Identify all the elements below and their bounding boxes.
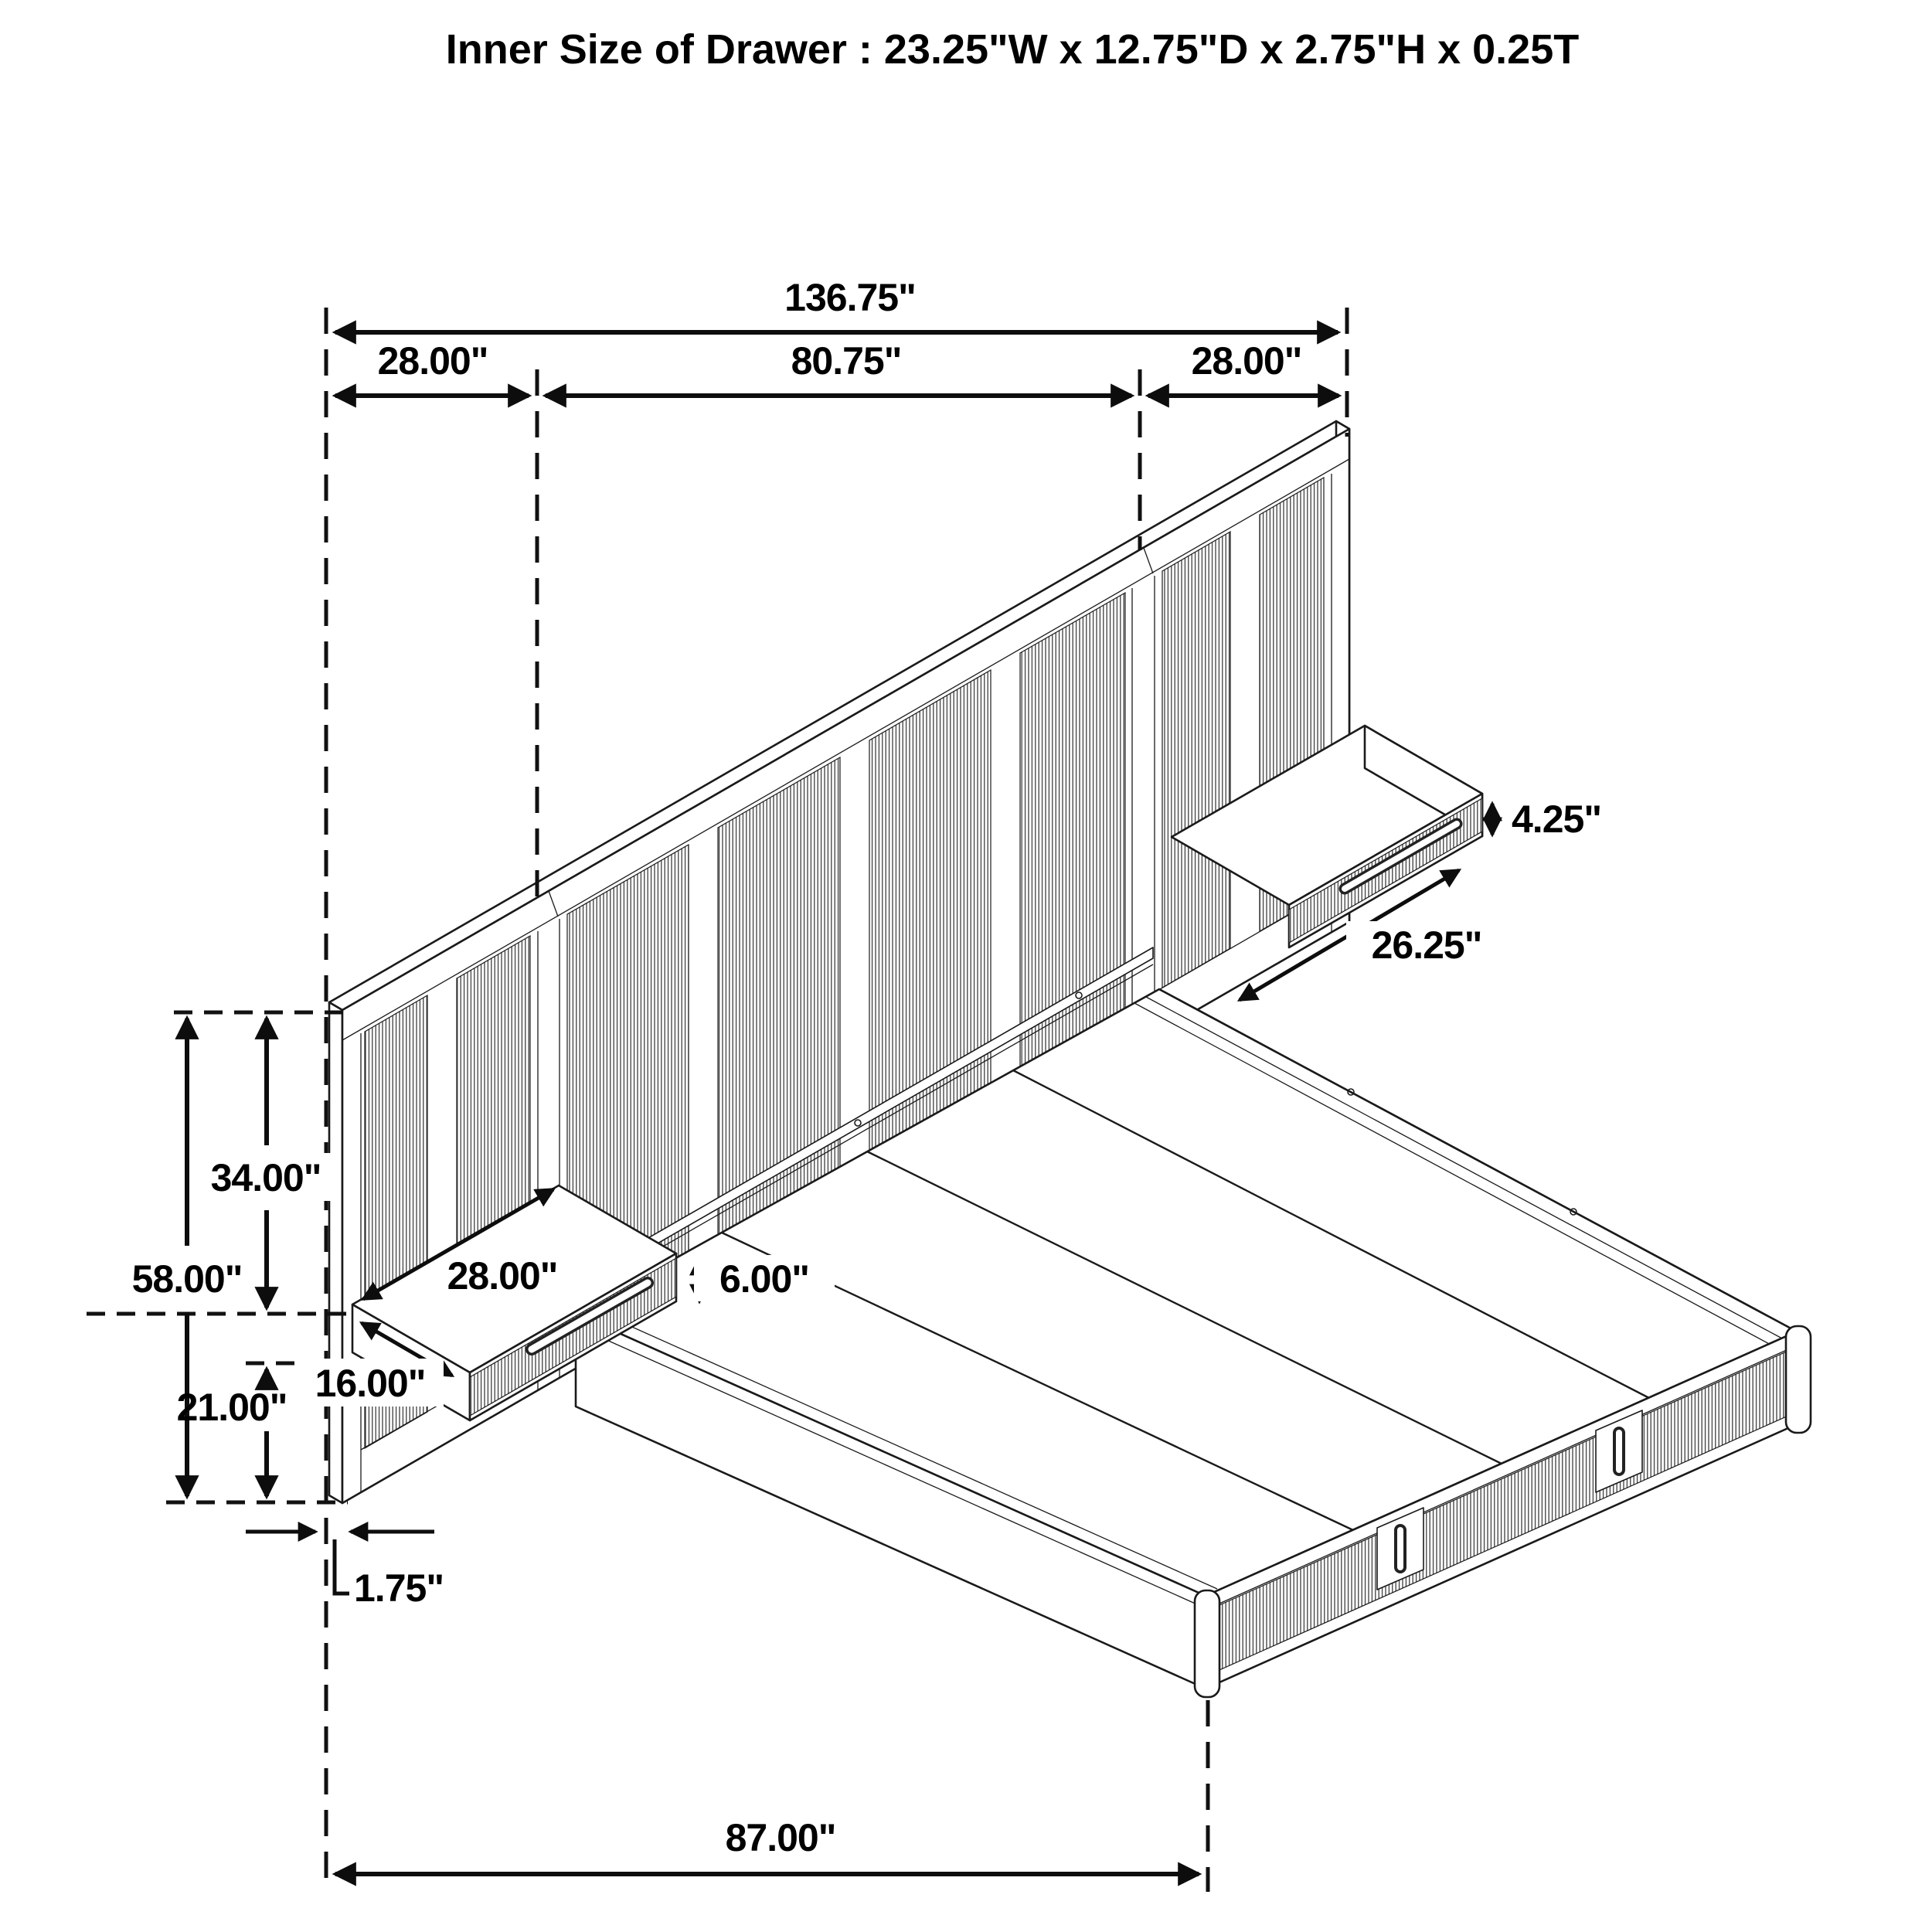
dim-label-right-nightstand-height: 4.25" bbox=[1512, 798, 1601, 841]
dim-label-right-section: 28.00" bbox=[1192, 339, 1302, 383]
corner-post-left bbox=[1195, 1590, 1219, 1697]
dim-label-left-nightstand-depth: 16.00" bbox=[315, 1362, 426, 1405]
dim-section-widths: 28.00" 80.75" 28.00" bbox=[335, 339, 1338, 396]
dim-bed-length: 87.00" bbox=[335, 1816, 1199, 1874]
dim-label-panel-lower: 21.00" bbox=[177, 1386, 287, 1429]
dim-label-panel-upper: 34.00" bbox=[211, 1156, 321, 1199]
dim-label-overall-width: 136.75" bbox=[784, 276, 916, 319]
dim-label-left-nightstand-width: 28.00" bbox=[447, 1254, 558, 1298]
bed-dimension-diagram: 136.75" 28.00" 80.75" 28.00" 58.00" 34.0… bbox=[0, 0, 1932, 1932]
dim-left-nightstand-height: 6.00" bbox=[694, 1255, 835, 1301]
dim-label-panel-height: 58.00" bbox=[132, 1257, 243, 1301]
diagram-page: 136.75" 28.00" 80.75" 28.00" 58.00" 34.0… bbox=[0, 0, 1932, 1932]
dim-label-left-section: 28.00" bbox=[378, 339, 488, 383]
page-title: Inner Size of Drawer : 23.25"W x 12.75"D… bbox=[446, 26, 1579, 73]
dim-label-bed-length: 87.00" bbox=[726, 1816, 836, 1859]
corner-post-right bbox=[1786, 1326, 1811, 1433]
dim-label-center-section: 80.75" bbox=[791, 339, 902, 383]
dim-right-nightstand-height: 4.25" bbox=[1492, 798, 1601, 841]
dim-label-panel-thickness: 1.75" bbox=[354, 1566, 444, 1610]
dim-panel-lower: 21.00" bbox=[177, 1369, 287, 1496]
dim-label-left-nightstand-height: 6.00" bbox=[719, 1257, 809, 1301]
dim-label-right-nightstand-width: 26.25" bbox=[1372, 923, 1482, 967]
dim-panel-thickness: 1.75" bbox=[246, 1532, 444, 1610]
panel-left-edge bbox=[329, 1002, 342, 1503]
dim-overall-width: 136.75" bbox=[335, 276, 1338, 332]
